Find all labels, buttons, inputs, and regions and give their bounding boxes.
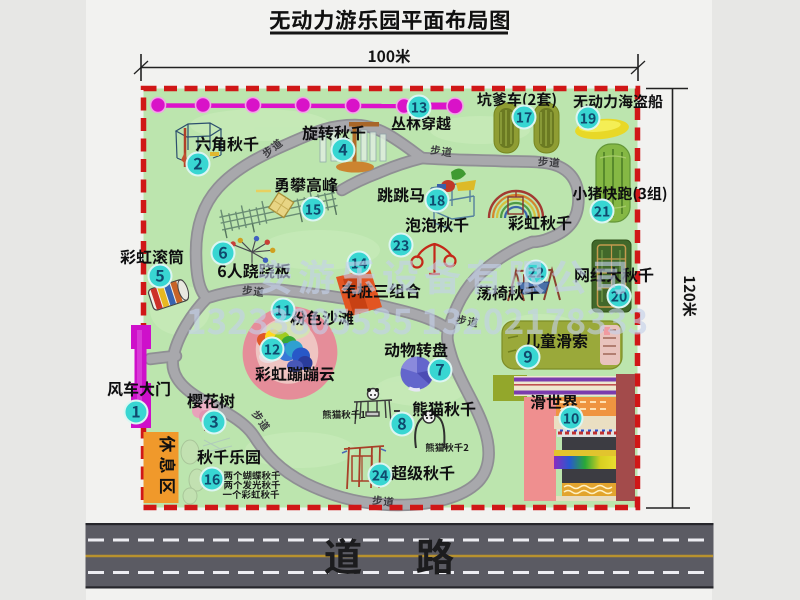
svg-text:彩虹蹦蹦云: 彩虹蹦蹦云 (255, 361, 335, 385)
svg-text:5: 5 (155, 263, 164, 287)
svg-text:熊猫秋千1: 熊猫秋千1 (322, 407, 366, 421)
svg-text:19: 19 (580, 109, 597, 129)
svg-text:步道: 步道 (429, 143, 454, 161)
svg-text:100米: 100米 (368, 45, 411, 67)
svg-text:旋转秋千: 旋转秋千 (302, 120, 366, 144)
svg-text:4: 4 (338, 137, 347, 161)
svg-text:10: 10 (563, 409, 580, 429)
svg-text:风车大门: 风车大门 (107, 376, 171, 400)
svg-text:6: 6 (218, 240, 227, 264)
svg-text:13233805535 13202178333: 13233805535 13202178333 (186, 294, 648, 345)
svg-text:一个彩虹秋千: 一个彩虹秋千 (222, 487, 280, 501)
svg-text:休息区: 休息区 (156, 436, 181, 499)
svg-text:16: 16 (204, 470, 221, 490)
svg-text:7: 7 (435, 357, 444, 381)
svg-text:秋千乐园: 秋千乐园 (197, 444, 261, 468)
svg-text:彩虹滚筒: 彩虹滚筒 (120, 244, 184, 268)
svg-text:熊猫秋千2: 熊猫秋千2 (425, 440, 469, 454)
svg-text:2: 2 (193, 151, 202, 175)
svg-text:1: 1 (131, 399, 140, 423)
svg-text:15: 15 (305, 200, 322, 220)
svg-text:24: 24 (372, 466, 389, 486)
svg-text:17: 17 (516, 108, 533, 128)
svg-text:超级秋千: 超级秋千 (391, 460, 455, 484)
svg-text:小猪快跑(3组): 小猪快跑(3组) (572, 183, 667, 204)
svg-text:3: 3 (209, 409, 218, 433)
svg-text:六角秋千: 六角秋千 (195, 131, 259, 155)
svg-text:道: 道 (324, 527, 363, 583)
svg-text:跳跳马: 跳跳马 (377, 182, 425, 206)
svg-text:泡泡秋千: 泡泡秋千 (405, 212, 469, 236)
svg-text:9: 9 (523, 344, 532, 368)
svg-text:勇攀高峰: 勇攀高峰 (274, 172, 338, 196)
svg-text:120米: 120米 (679, 275, 700, 317)
svg-text:8: 8 (397, 411, 406, 435)
svg-text:13: 13 (411, 98, 428, 118)
svg-text:21: 21 (594, 202, 611, 222)
svg-text:步道: 步道 (537, 154, 561, 171)
svg-text:无动力游乐园平面布局图: 无动力游乐园平面布局图 (269, 4, 511, 35)
svg-text:路: 路 (416, 527, 455, 583)
svg-text:彩虹秋千: 彩虹秋千 (508, 210, 572, 234)
svg-text:18: 18 (429, 191, 446, 211)
svg-text:熊猫秋千: 熊猫秋千 (412, 396, 476, 420)
